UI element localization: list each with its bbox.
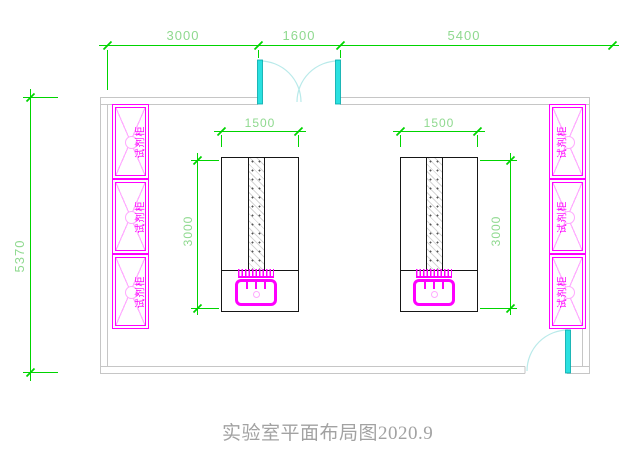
dim-hood-left-width: 1500 xyxy=(237,116,283,130)
cabinet-label: 试剂柜 xyxy=(554,275,569,308)
dim-top-left: 3000 xyxy=(160,29,206,43)
hood-right-width-ext xyxy=(401,135,478,147)
linework-layer xyxy=(0,0,619,469)
fan-tick xyxy=(264,282,266,289)
cabinet-label: 试剂柜 xyxy=(554,200,569,233)
fan-tick xyxy=(424,282,426,289)
top-door-jambs xyxy=(258,98,340,105)
exhaust-duct xyxy=(426,157,443,271)
fan-hub-icon xyxy=(253,291,260,298)
fan-grille-icon xyxy=(416,269,452,278)
left-extension-lines xyxy=(23,98,58,373)
cabinet-label: 试剂柜 xyxy=(132,275,147,308)
fume-hood-right xyxy=(400,157,478,312)
dim-hood-right-depth: 3000 xyxy=(489,208,503,254)
dim-top-right: 5400 xyxy=(441,29,487,43)
side-door-swing-arc xyxy=(527,330,568,371)
cabinet-label: 试剂柜 xyxy=(132,125,147,158)
fan-tick xyxy=(433,282,435,289)
top-extension-lines xyxy=(108,50,341,90)
fume-hood-left xyxy=(221,157,299,312)
hood-left-depth-ext xyxy=(191,161,219,309)
reagent-cabinet: 试剂柜 xyxy=(112,179,149,254)
fan-tick xyxy=(255,282,257,289)
entry-door-right-leaf xyxy=(336,60,341,104)
left-wall-lines xyxy=(101,97,108,374)
hood-left-width-ext xyxy=(222,135,299,147)
floorplan-canvas: 试剂柜 试剂柜 试剂柜 试剂柜 试剂柜 试剂柜 xyxy=(0,0,619,469)
fan-tick xyxy=(246,282,248,289)
reagent-cabinet: 试剂柜 xyxy=(112,104,149,179)
entry-door-right-swing-arc xyxy=(297,61,338,102)
fan-tick xyxy=(442,282,444,289)
exhaust-duct xyxy=(248,157,265,271)
exhaust-fan-icon xyxy=(413,279,455,306)
dim-top-middle: 1600 xyxy=(276,29,322,43)
dim-hood-left-depth: 3000 xyxy=(181,208,195,254)
cabinet-label: 试剂柜 xyxy=(132,200,147,233)
fan-grille-icon xyxy=(238,269,274,278)
walls xyxy=(100,97,590,374)
dim-room-height: 5370 xyxy=(13,233,27,279)
reagent-cabinet: 试剂柜 xyxy=(549,254,586,329)
entry-door-left-leaf xyxy=(258,60,263,104)
drawing-title: 实验室平面布局图2020.9 xyxy=(222,418,462,445)
entry-door-left-swing-arc xyxy=(260,61,301,102)
side-door-leaf xyxy=(566,330,571,373)
cabinet-label: 试剂柜 xyxy=(554,125,569,158)
bottom-door-jambs xyxy=(525,367,567,374)
reagent-cabinet: 试剂柜 xyxy=(549,104,586,179)
exhaust-fan-icon xyxy=(235,279,277,306)
fan-hub-icon xyxy=(431,291,438,298)
reagent-cabinet: 试剂柜 xyxy=(549,179,586,254)
dim-hood-right-width: 1500 xyxy=(416,116,462,130)
reagent-cabinet: 试剂柜 xyxy=(112,254,149,329)
